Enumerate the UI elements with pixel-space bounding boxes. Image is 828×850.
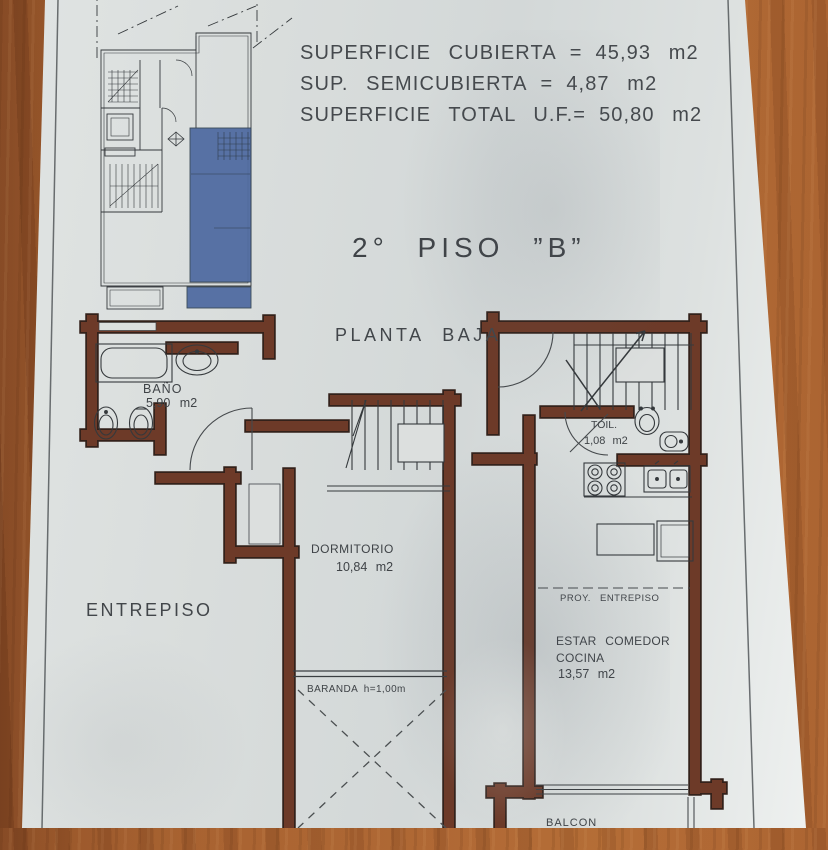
baranda-label: BARANDA h=1,00m — [307, 684, 406, 695]
key-plan-light-symbol — [168, 132, 184, 146]
kitchen-sink-icon — [644, 461, 690, 492]
equals-sign: = — [570, 42, 583, 65]
stair-break-line — [346, 400, 366, 468]
toil-name-label: TOIL. — [591, 419, 617, 431]
balcony-window — [536, 785, 688, 794]
area-label: SUPERFICIE CUBIERTA — [300, 42, 557, 65]
toil-area-label: 1,08 m2 — [584, 435, 628, 447]
closet — [249, 484, 280, 544]
key-plan-balcony-left-inner — [110, 290, 160, 306]
void-cross-dashed — [298, 690, 446, 828]
estar-name-label-2: COCINA — [556, 651, 604, 665]
bano-window — [99, 323, 156, 331]
key-plan — [97, 0, 292, 309]
area-value: 4,87 m2 — [566, 73, 657, 96]
key-plan-door-arcs — [162, 60, 192, 122]
kitchen-fixtures — [584, 461, 693, 561]
small-sink-icon — [660, 432, 688, 451]
key-plan-balcony-left — [107, 287, 163, 309]
bano-door-swing — [190, 408, 252, 470]
toilet-icon-2 — [635, 407, 659, 434]
area-label: SUP. SEMICUBIERTA — [300, 73, 528, 96]
bano-area-label: 5,90 m2 — [146, 396, 197, 410]
area-summary: SUPERFICIE CUBIERTA = 45,93 m2 SUP. SEMI… — [300, 42, 702, 135]
washbasin-icon — [176, 345, 218, 375]
entrepiso-stair — [327, 400, 450, 491]
balcon-label: BALCON — [546, 817, 597, 828]
area-value: 50,80 m2 — [599, 104, 702, 127]
estar-area-label: 13,57 m2 — [558, 667, 615, 681]
bathtub-icon — [96, 344, 172, 382]
key-plan-stair-1 — [108, 70, 138, 102]
key-plan-partitions — [101, 36, 196, 212]
kitchen-counter-units — [597, 521, 693, 561]
equals-sign: = — [541, 73, 554, 96]
area-line-semicubierta: SUP. SEMICUBIERTA = 4,87 m2 — [300, 73, 702, 96]
key-plan-unit-b-highlight — [187, 128, 251, 308]
dormitorio-area-label: 10,84 m2 — [336, 560, 393, 574]
key-plan-unit-b-balcony — [187, 287, 251, 308]
area-value: 45,93 m2 — [596, 42, 699, 65]
entry-door-swing — [498, 332, 553, 387]
proy-entrepiso-label: PROY. ENTREPISO — [560, 593, 659, 604]
blueprint-paper: BAÑO 5,90 m2 DORMITORIO 10,84 m2 BARANDA… — [0, 0, 828, 828]
stove-icon — [584, 463, 625, 496]
toil-fixtures — [635, 407, 688, 451]
estar-name-label-1: ESTAR COMEDOR — [556, 634, 670, 648]
key-plan-caption: PLANTA BAJA — [335, 325, 501, 346]
key-plan-shelf — [105, 148, 135, 156]
baranda-railing — [293, 671, 447, 677]
key-plan-equipment-inner — [111, 118, 129, 136]
area-line-total: SUPERFICIE TOTAL U.F.= 50,80 m2 — [300, 104, 702, 127]
key-plan-stair-2 — [110, 164, 158, 208]
property-boundary-dashed — [97, 0, 292, 58]
entrepiso-plan-walls — [86, 320, 455, 828]
balcony-rail-edge — [688, 797, 694, 828]
entrepiso-plan-label: ENTREPISO — [86, 600, 213, 621]
area-label: SUPERFICIE TOTAL U.F.= — [300, 104, 586, 127]
area-line-cubierta: SUPERFICIE CUBIERTA = 45,93 m2 — [300, 42, 702, 65]
floor-title: 2° PISO ”B” — [352, 232, 586, 264]
bano-name-label: BAÑO — [143, 382, 182, 396]
piso-b-stair — [566, 331, 694, 411]
dormitorio-name-label: DORMITORIO — [311, 542, 394, 556]
